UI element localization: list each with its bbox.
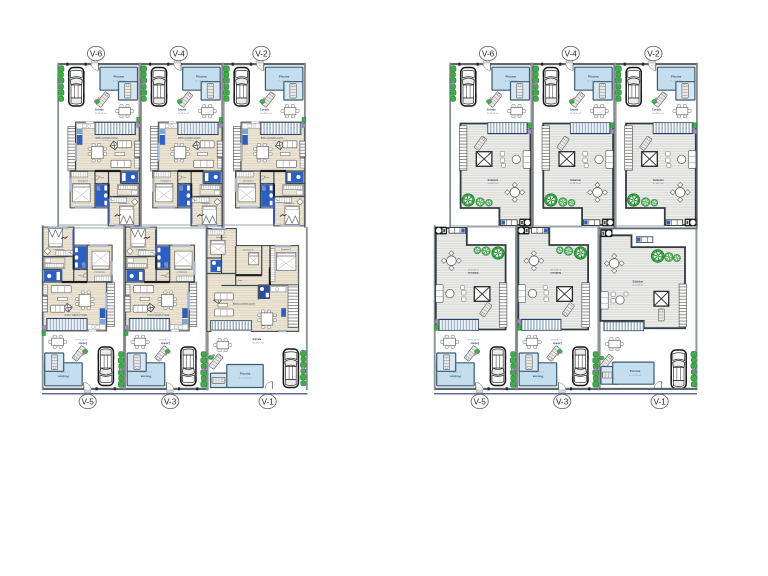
svg-text:Entrada: Entrada	[253, 338, 262, 341]
svg-text:Piscina: Piscina	[240, 372, 251, 376]
svg-text:Dormitorio 1: Dormitorio 1	[216, 236, 226, 239]
svg-text:V-2: V-2	[647, 49, 660, 58]
svg-text:V-5: V-5	[474, 397, 487, 406]
svg-text:V-1: V-1	[261, 397, 274, 406]
svg-text:V-5: V-5	[82, 397, 95, 406]
svg-text:V-3: V-3	[556, 397, 569, 406]
svg-text:Paso: Paso	[238, 280, 242, 282]
svg-text:S= 12,80 m2: S= 12,80 m2	[629, 375, 642, 377]
svg-text:Dormitorio 3: Dormitorio 3	[243, 248, 253, 251]
svg-text:V-1: V-1	[653, 397, 666, 406]
svg-text:V-3: V-3	[164, 397, 177, 406]
svg-text:V-6: V-6	[482, 49, 495, 58]
svg-text:V-6: V-6	[90, 49, 103, 58]
svg-text:S= 49,95 m2: S= 49,95 m2	[253, 342, 265, 344]
svg-text:S= 12,80 m2: S= 12,80 m2	[239, 378, 252, 380]
svg-text:Piscina: Piscina	[630, 369, 641, 373]
svg-text:S= 55,20 m2: S= 55,20 m2	[632, 285, 643, 287]
svg-text:V-2: V-2	[255, 49, 268, 58]
svg-text:Solárium: Solárium	[632, 281, 643, 284]
svg-text:V-4: V-4	[173, 49, 186, 58]
svg-text:Dormitorio 2: Dormitorio 2	[281, 248, 291, 251]
svg-text:V-4: V-4	[565, 49, 578, 58]
svg-text:Salón-comedor-cocina: Salón-comedor-cocina	[233, 303, 256, 306]
